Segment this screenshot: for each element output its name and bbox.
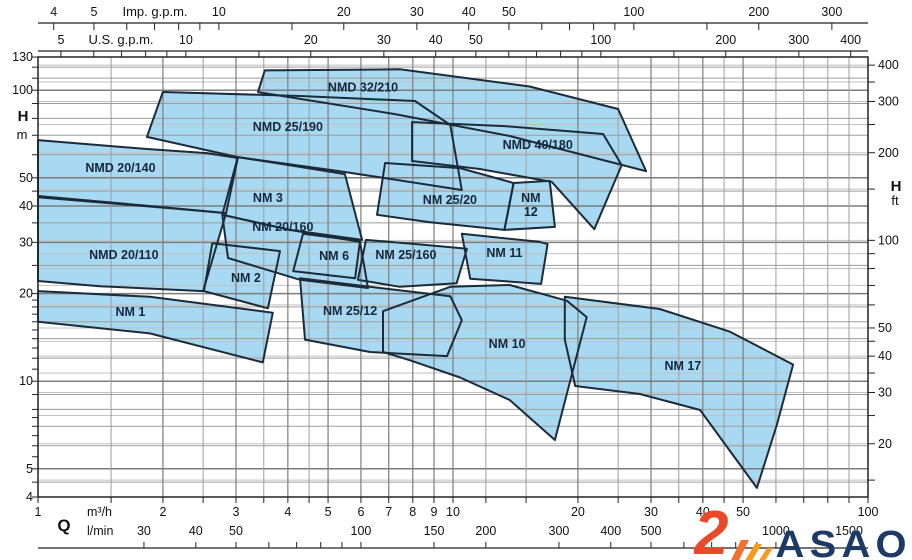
- regions-fill-layer: [38, 69, 793, 488]
- flow-m3h-tick-label: 4: [284, 505, 291, 519]
- imp-gpm-tick-label: 40: [462, 5, 476, 19]
- imp-gpm-tick-label: 100: [623, 5, 644, 19]
- imp-gpm-tick-label: 50: [502, 5, 516, 19]
- logo-stripe: [758, 548, 773, 560]
- flow-m3h-tick-label: 10: [446, 505, 460, 519]
- head-m-tick-label: 20: [19, 287, 33, 301]
- logo-numeral-icon: 2: [694, 502, 782, 560]
- flow-lmin-tick-label: 100: [351, 524, 372, 538]
- flow-axis-title: Q: [57, 516, 70, 535]
- flow-lmin-tick-label: 40: [189, 524, 203, 538]
- head-ft-tick-label: 200: [878, 146, 899, 160]
- region-label-nmd-40-180: NMD 40/180: [503, 138, 573, 152]
- imp-gpm-tick-label: 5: [90, 5, 97, 19]
- flow-lmin-tick-label: 50: [229, 524, 243, 538]
- head-ft-axis-unit: ft: [891, 193, 899, 208]
- region-label-nm-6: NM 6: [319, 249, 349, 263]
- flow-lmin-tick-label: 300: [549, 524, 570, 538]
- flow-m3h-tick-label: 3: [233, 505, 240, 519]
- head-m-tick-label: 130: [12, 50, 33, 64]
- us-gpm-tick-label: 20: [304, 33, 318, 47]
- imp-gpm-tick-label: 200: [748, 5, 769, 19]
- region-label-nmd-32-210: NMD 32/210: [328, 81, 398, 95]
- flow-m3h-tick-label: 7: [385, 505, 392, 519]
- flow-lmin-tick-label: 400: [600, 524, 621, 538]
- flow-m3h-tick-label: 1: [35, 505, 42, 519]
- head-m-axis-unit: m: [17, 127, 28, 142]
- head-ft-tick-label: 40: [878, 349, 892, 363]
- logo-stripe: [730, 540, 749, 560]
- flow-lmin-tick-label: 200: [475, 524, 496, 538]
- region-label-nm-1: NM 1: [115, 305, 145, 319]
- brand-logo: 2 ASAO: [694, 502, 912, 560]
- us-gpm-tick-label: 300: [788, 33, 809, 47]
- us-gpm-tick-label: 30: [377, 33, 391, 47]
- imp-gpm-tick-label: 10: [212, 5, 226, 19]
- flow-lmin-tick-label: 500: [641, 524, 662, 538]
- flow-lmin-axis-unit: l/min: [87, 524, 113, 538]
- flow-m3h-axis-unit: m³/h: [87, 505, 112, 519]
- us-gpm-tick-label: 100: [590, 33, 611, 47]
- region-label-nm-25-20: NM 25/20: [423, 193, 477, 207]
- us-gpm-tick-label: 10: [179, 33, 193, 47]
- imp-gpm-tick-label: 20: [337, 5, 351, 19]
- flow-m3h-tick-label: 30: [644, 505, 658, 519]
- us-gpm-axis-title: U.S. g.p.m.: [88, 32, 153, 47]
- chart-canvas: 451020304050100200300Imp. g.p.m.51020304…: [0, 0, 912, 560]
- head-m-axis-title: H: [18, 108, 29, 125]
- imp-gpm-axis-title: Imp. g.p.m.: [122, 4, 187, 19]
- head-ft-tick-label: 50: [878, 321, 892, 335]
- imp-gpm-tick-label: 30: [410, 5, 424, 19]
- region-label-nm-12: NM12: [521, 191, 540, 219]
- flow-m3h-tick-label: 5: [325, 505, 332, 519]
- pump-selection-chart: 451020304050100200300Imp. g.p.m.51020304…: [0, 0, 912, 560]
- region-nm-1[interactable]: [38, 291, 273, 362]
- logo-numeral: 2: [694, 502, 728, 560]
- imp-gpm-tick-label: 4: [50, 5, 57, 19]
- head-ft-tick-label: 400: [878, 58, 899, 72]
- head-m-tick-label: 30: [19, 235, 33, 249]
- head-m-tick-label: 5: [26, 462, 33, 476]
- us-gpm-tick-label: 50: [469, 33, 483, 47]
- logo-stripe: [744, 544, 762, 560]
- head-ft-tick-label: 300: [878, 95, 899, 109]
- region-label-nm-10: NM 10: [489, 337, 526, 351]
- region-label-nm-25-160: NM 25/160: [375, 248, 436, 262]
- region-label-nm-20-160: NM 20/160: [252, 220, 313, 234]
- us-gpm-tick-label: 40: [429, 33, 443, 47]
- imp-gpm-tick-label: 300: [821, 5, 842, 19]
- head-m-tick-label: 4: [26, 490, 33, 504]
- head-m-tick-label: 100: [12, 83, 33, 97]
- region-label-nmd-20-140: NMD 20/140: [85, 161, 155, 175]
- head-ft-tick-label: 30: [878, 386, 892, 400]
- head-ft-tick-label: 100: [878, 233, 899, 247]
- flow-lmin-tick-label: 30: [137, 524, 151, 538]
- region-label-nm-17: NM 17: [664, 359, 701, 373]
- head-m-tick-label: 40: [19, 199, 33, 213]
- region-label-nm-2: NM 2: [231, 271, 261, 285]
- head-m-tick-label: 10: [19, 374, 33, 388]
- flow-m3h-tick-label: 9: [431, 505, 438, 519]
- flow-m3h-tick-label: 8: [409, 505, 416, 519]
- us-gpm-tick-label: 200: [715, 33, 736, 47]
- us-gpm-tick-label: 400: [840, 33, 861, 47]
- flow-m3h-tick-label: 20: [571, 505, 585, 519]
- brand-name: ASAO: [776, 526, 912, 560]
- region-label-nm-11: NM 11: [486, 246, 522, 260]
- region-label-nm-25-12: NM 25/12: [323, 304, 377, 318]
- flow-m3h-tick-label: 2: [159, 505, 166, 519]
- flow-lmin-tick-label: 150: [424, 524, 445, 538]
- head-ft-tick-label: 20: [878, 437, 892, 451]
- us-gpm-tick-label: 5: [57, 33, 64, 47]
- flow-m3h-tick-label: 6: [357, 505, 364, 519]
- region-label-nm-3: NM 3: [253, 191, 283, 205]
- region-label-nmd-20-110: NMD 20/110: [89, 248, 159, 262]
- region-label-nmd-25-190: NMD 25/190: [253, 120, 323, 134]
- head-m-tick-label: 50: [19, 171, 33, 185]
